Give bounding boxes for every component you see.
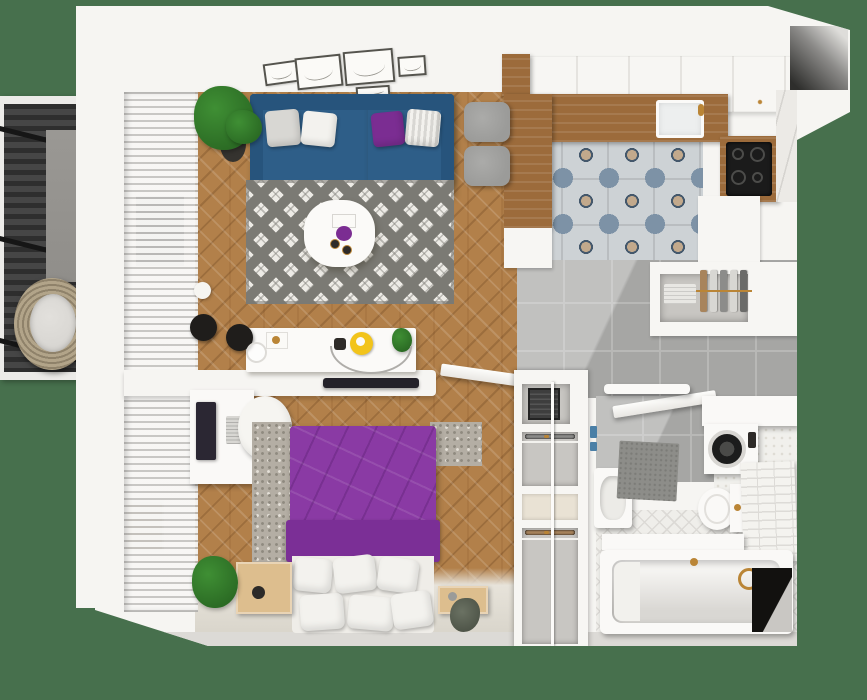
tiled-half-wall — [740, 461, 797, 563]
plate-stack — [664, 284, 696, 304]
burner — [750, 147, 765, 162]
bathtub-drain-gold — [690, 558, 698, 566]
bed-pillow — [292, 556, 333, 594]
tray-cup — [356, 337, 365, 346]
bedroom-rug — [430, 422, 482, 466]
plate-rack-rod — [696, 290, 752, 292]
sofa-cushion — [404, 109, 441, 148]
floorplan-scene — [0, 0, 867, 700]
burner — [752, 172, 763, 183]
table-flowers — [336, 226, 352, 241]
cooktop — [726, 142, 772, 196]
burner — [731, 170, 746, 185]
apartment-walls — [0, 0, 867, 700]
wall-tv — [323, 378, 419, 388]
safe-box — [528, 388, 560, 420]
table-cup — [330, 239, 340, 249]
wall-recess — [790, 26, 848, 90]
shoe-wardrobe — [514, 370, 588, 648]
gallery-frame — [263, 60, 300, 87]
kitchen-corner-shelf — [502, 54, 530, 96]
bath-mat — [617, 440, 680, 501]
sofa-cushion — [300, 110, 337, 147]
nightstand-decor — [252, 586, 265, 599]
bathtub-step — [614, 562, 640, 621]
shoe-rack-lower — [522, 528, 578, 644]
concrete-pillar — [46, 130, 78, 282]
kitchen-lower-cabinet — [698, 196, 760, 266]
toilet-seat — [704, 494, 730, 524]
leaning-mirror — [752, 568, 792, 632]
bed-pillow — [347, 594, 396, 632]
marble-backsplash — [776, 90, 797, 202]
monitor — [196, 402, 216, 460]
burner — [732, 148, 744, 160]
shoe-shelf — [522, 432, 578, 443]
bedroom-plant — [192, 556, 238, 608]
bar-stool — [464, 146, 510, 186]
sofa-arm — [441, 94, 454, 194]
table-cup — [342, 245, 352, 255]
sofa-backrest — [250, 94, 454, 110]
nightstand — [236, 562, 292, 614]
shoe-rack-upper — [522, 432, 578, 486]
shoe-shelf — [522, 528, 578, 540]
bed-pillow — [332, 554, 378, 595]
bottom-wall-edge — [100, 632, 800, 646]
glass-vase — [246, 342, 267, 363]
bar-stool — [464, 102, 510, 142]
decor-gold-dot — [272, 336, 280, 344]
wardrobe-shelf — [522, 494, 578, 520]
kitchen-peninsula — [504, 94, 552, 228]
bed-pillow — [390, 589, 435, 630]
bed-pillow — [299, 593, 345, 632]
potted-palm-leaf — [226, 110, 262, 144]
kitchen-sink — [656, 100, 704, 138]
towel-shelf — [604, 384, 690, 394]
vertical-blinds — [124, 92, 198, 612]
floor-lamp-shade — [194, 282, 211, 299]
towel — [590, 426, 597, 438]
washer-controls — [748, 432, 756, 448]
tub-ledge — [602, 534, 744, 550]
gallery-frame — [294, 54, 343, 91]
toilet-gold-button — [734, 504, 741, 511]
outer-wall-left — [76, 6, 98, 608]
sofa-cushion — [264, 109, 301, 148]
bed-pillow — [376, 555, 420, 594]
hanging-chair-cushion — [30, 294, 76, 352]
kitchen-faucet — [698, 104, 704, 116]
sofa-cushion — [370, 110, 405, 147]
peninsula-cabinet — [504, 228, 552, 268]
nightstand-vase — [448, 592, 457, 601]
wardrobe-pole — [551, 382, 554, 646]
gallery-frame — [397, 55, 426, 77]
towel — [590, 442, 597, 451]
gallery-frame — [343, 48, 396, 86]
floor-lamp-base — [190, 314, 217, 341]
washer-counter — [702, 396, 797, 426]
